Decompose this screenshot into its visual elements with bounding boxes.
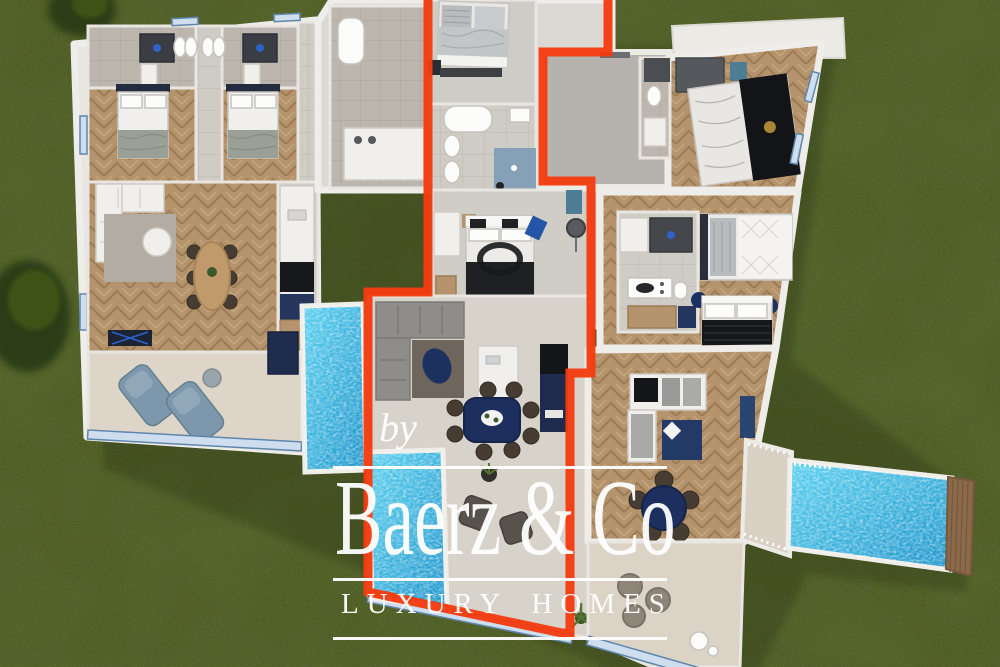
canopy-bed bbox=[688, 73, 801, 188]
tv-cabinet bbox=[630, 374, 706, 410]
pool-center bbox=[368, 450, 447, 608]
bathtub bbox=[444, 106, 492, 132]
outdoor-kitchen bbox=[268, 332, 298, 374]
bed-bench bbox=[440, 68, 502, 77]
coffee-table bbox=[143, 228, 171, 256]
window bbox=[274, 13, 300, 21]
ball-lamp bbox=[708, 646, 718, 656]
toilet bbox=[444, 135, 460, 157]
console bbox=[740, 396, 755, 438]
oven bbox=[628, 278, 672, 298]
floorplan-screenshot: by Baerz & Co LUXURY HOMES bbox=[0, 0, 1000, 667]
barbecue bbox=[567, 219, 585, 237]
ball-lamp bbox=[690, 632, 708, 650]
laundry-counter bbox=[344, 128, 424, 180]
side-table bbox=[203, 369, 221, 387]
pool-walkway bbox=[742, 440, 792, 556]
sideboard bbox=[108, 330, 152, 346]
window bbox=[80, 116, 87, 154]
pool-deck bbox=[946, 477, 974, 576]
double-bed bbox=[226, 84, 280, 158]
sink bbox=[674, 282, 687, 299]
window bbox=[172, 17, 198, 25]
cabinet bbox=[678, 306, 696, 328]
shower bbox=[644, 58, 670, 82]
dining-table bbox=[187, 242, 237, 310]
dresser bbox=[244, 64, 260, 86]
nightstand bbox=[730, 62, 747, 81]
floorplan-render bbox=[0, 0, 1000, 667]
left-apartment bbox=[74, 13, 318, 452]
washbasin bbox=[510, 108, 530, 122]
kitchen-counter bbox=[540, 344, 568, 432]
double-bed bbox=[700, 214, 792, 280]
cabinet bbox=[628, 306, 676, 328]
double-bed bbox=[116, 84, 170, 158]
wardrobe bbox=[434, 212, 460, 256]
bathtub bbox=[338, 18, 364, 64]
dresser bbox=[141, 64, 157, 86]
chaise-sofa bbox=[628, 410, 656, 462]
double-bed bbox=[437, 1, 509, 67]
window bbox=[80, 294, 87, 330]
bidet bbox=[444, 161, 460, 183]
toilet bbox=[647, 86, 661, 106]
washbasin-counter bbox=[644, 118, 666, 146]
